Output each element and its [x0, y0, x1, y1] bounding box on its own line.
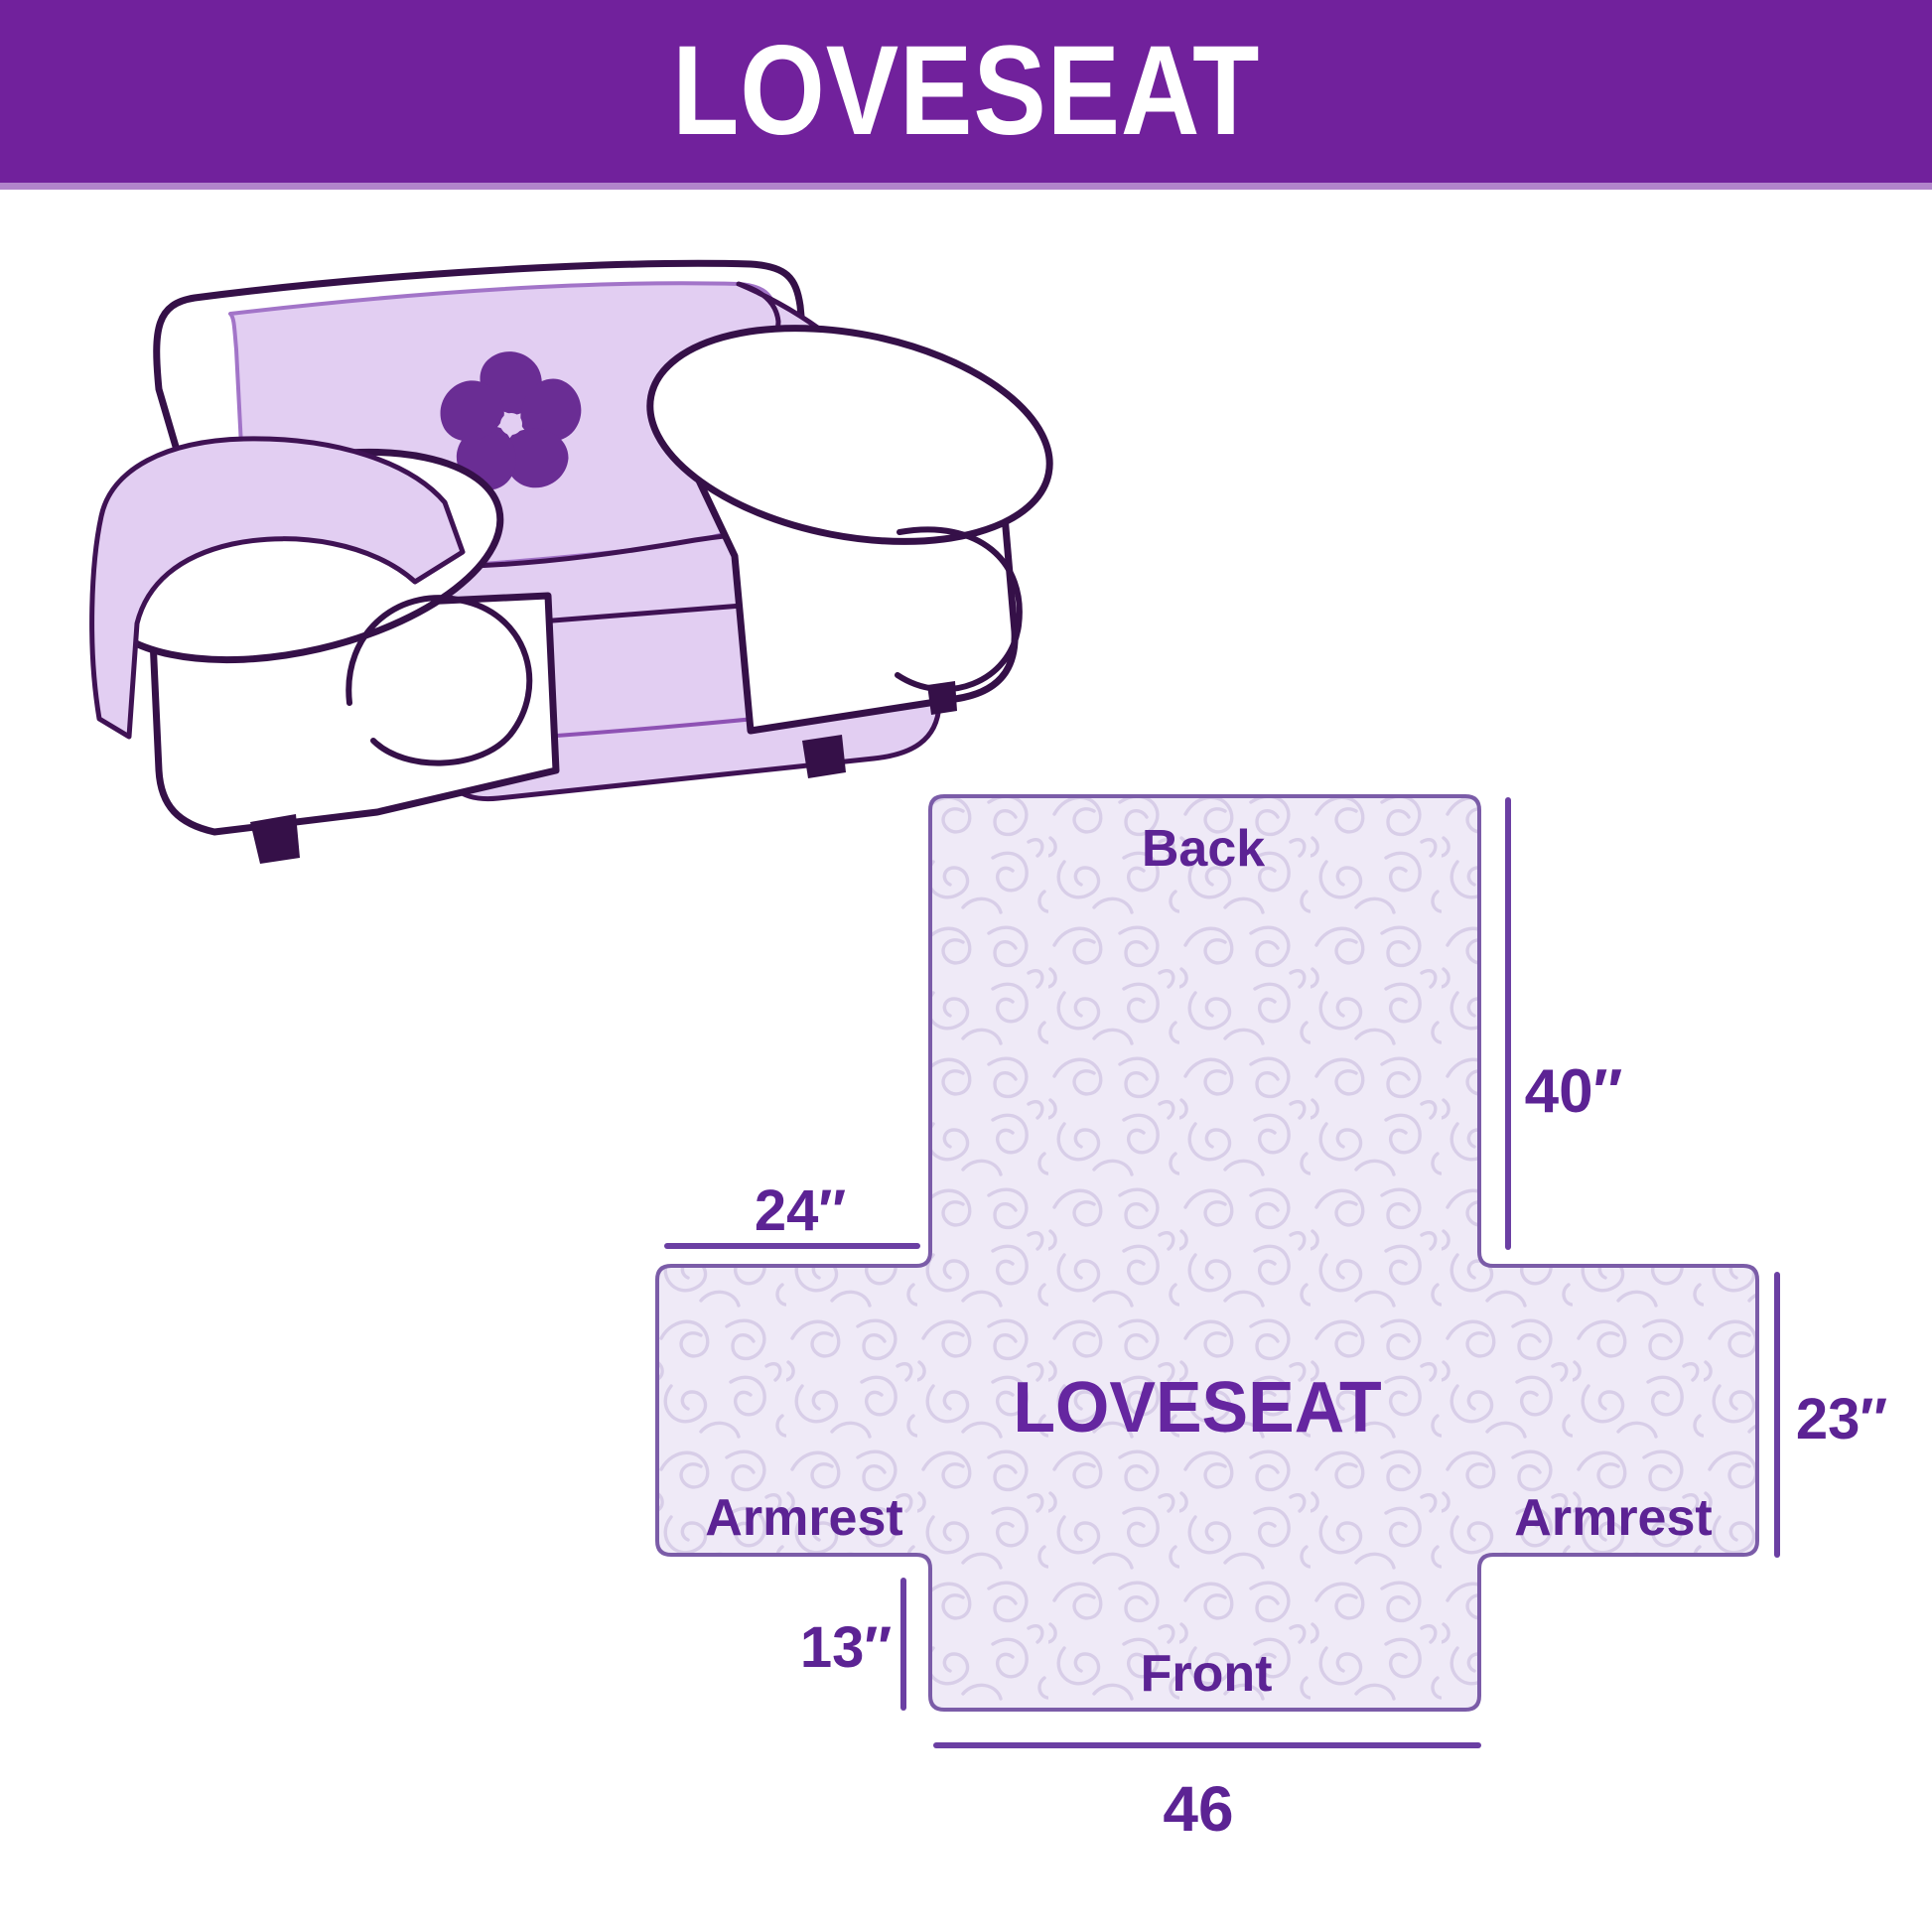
- scene-canvas: [0, 0, 1932, 1932]
- front-width-dimension: 46: [1163, 1777, 1233, 1841]
- cover-dimension-diagram: [657, 796, 1777, 1745]
- armrest-left-label: Armrest: [705, 1492, 902, 1544]
- cover-cross-shape: [657, 796, 1757, 1710]
- armrest-right-label: Armrest: [1514, 1492, 1712, 1544]
- diagram-center-label: LOVESEAT: [1013, 1372, 1381, 1444]
- armrest-width-dimension: 24″: [755, 1182, 846, 1240]
- front-panel-label: Front: [1141, 1648, 1273, 1700]
- back-height-dimension: 40″: [1525, 1061, 1623, 1123]
- sofa-illustration: [75, 263, 1068, 864]
- back-panel-label: Back: [1142, 823, 1265, 875]
- side-height-dimension: 23″: [1796, 1391, 1887, 1449]
- front-height-dimension: 13″: [800, 1619, 892, 1677]
